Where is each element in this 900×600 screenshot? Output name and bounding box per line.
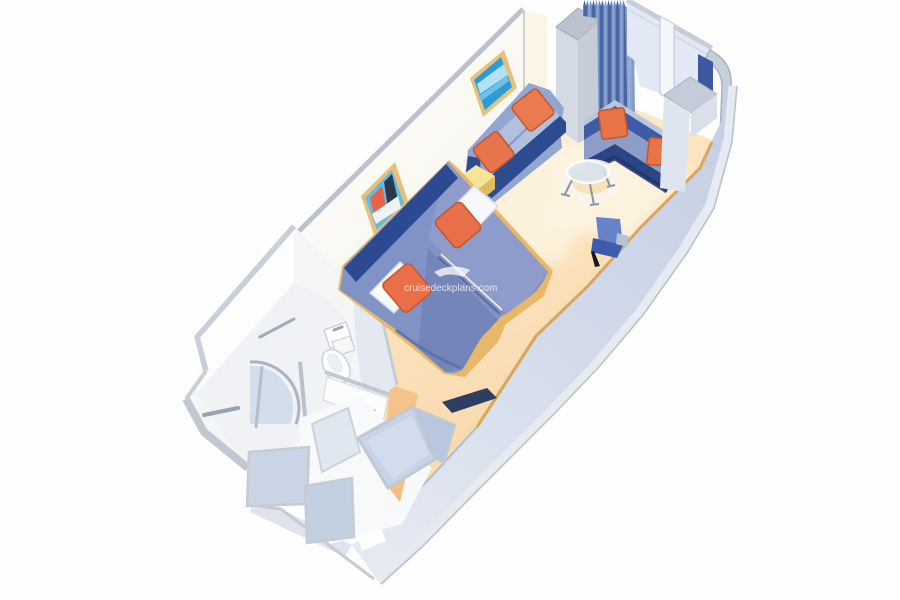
svg-text:cruisedeckplans.com: cruisedeckplans.com [404, 283, 497, 294]
